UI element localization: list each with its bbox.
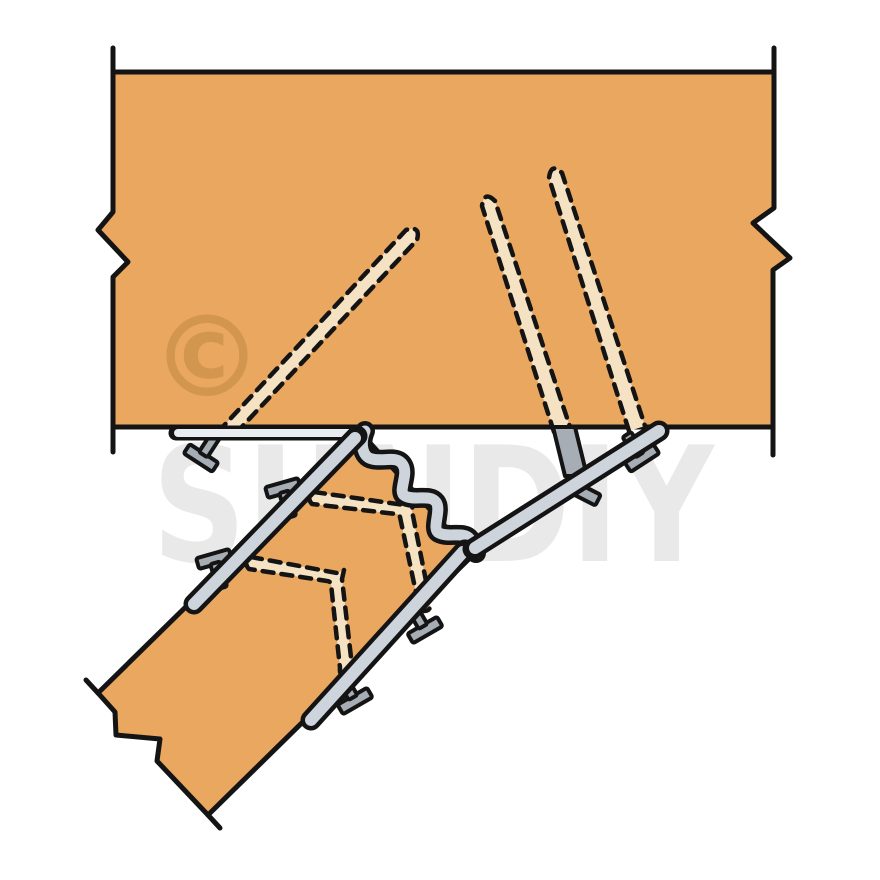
joist-break-edge-extension-upper <box>86 680 98 693</box>
joist-break-edge-extension-lower <box>208 815 220 828</box>
copyright-icon: © <box>151 293 263 423</box>
illustration-canvas: SUNDIY © <box>0 0 880 880</box>
joist-hanger-diagram: SUNDIY © <box>0 0 880 880</box>
